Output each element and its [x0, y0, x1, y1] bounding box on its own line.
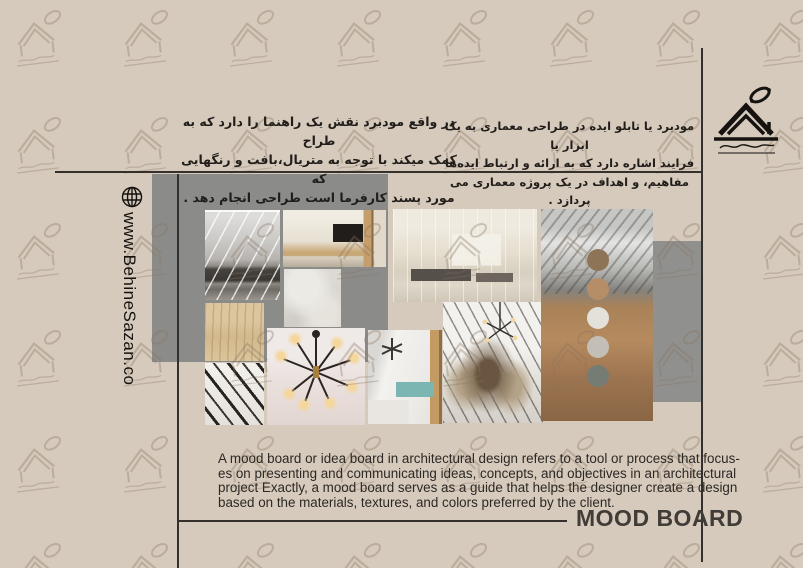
- palette-swatch: [587, 307, 609, 329]
- house-watermark-icon: [435, 7, 498, 71]
- house-watermark-icon: [115, 539, 178, 568]
- marble-texture-photo: [284, 269, 341, 327]
- persian-caption-right-line: مودبرد یا تابلو ایده در طراحی معماری به …: [443, 117, 696, 154]
- description-line: project Exactly, a mood board serves as …: [218, 481, 740, 496]
- house-watermark-icon: [754, 326, 803, 390]
- pendant-light-art: [443, 302, 543, 362]
- track-lighting-photo: [205, 363, 264, 425]
- footer-divider-line: [179, 520, 567, 522]
- color-palette: [587, 249, 609, 387]
- house-watermark-icon: [9, 433, 72, 497]
- bedroom-photo: [205, 210, 280, 300]
- ceiling-fan-art: [368, 330, 442, 370]
- palette-swatch: [587, 249, 609, 271]
- house-watermark-icon: [541, 539, 604, 568]
- moodboard-description: A mood board or idea board in architectu…: [218, 452, 740, 510]
- moodboard-page: در واقع مودبرد نقش یک راهنما را دارد که …: [0, 0, 803, 568]
- house-watermark-icon: [754, 539, 803, 568]
- house-watermark-icon: [754, 220, 803, 284]
- persian-caption-right: مودبرد یا تابلو ایده در طراحی معماری به …: [443, 117, 696, 210]
- description-line: A mood board or idea board in architectu…: [218, 452, 740, 467]
- wood-texture-photo: [205, 303, 264, 361]
- persian-caption-left-line: کمک میکند با توجه به متریال،بافت و رنگها…: [180, 150, 458, 188]
- house-watermark-icon: [435, 539, 498, 568]
- house-watermark-icon: [541, 7, 604, 71]
- house-watermark-icon: [9, 113, 72, 177]
- globe-icon: [121, 186, 143, 208]
- description-line: es on presenting and communicating ideas…: [218, 467, 740, 482]
- persian-caption-left-line: در واقع مودبرد نقش یک راهنما را دارد که …: [180, 112, 458, 150]
- fan-room-photo: [368, 330, 442, 424]
- house-watermark-icon: [222, 539, 285, 568]
- chandelier-photo: [267, 328, 365, 425]
- house-watermark-icon: [328, 539, 391, 568]
- page-title: MOOD BOARD: [576, 505, 743, 532]
- house-watermark-icon: [115, 113, 178, 177]
- house-watermark-icon: [754, 7, 803, 71]
- house-watermark-icon: [9, 7, 72, 71]
- house-watermark-icon: [222, 7, 285, 71]
- house-watermark-icon: [9, 220, 72, 284]
- house-watermark-icon: [115, 433, 178, 497]
- house-watermark-icon: [9, 326, 72, 390]
- persian-caption-right-line: فرایند اشاره دارد که به ارائه و ارتباط ا…: [443, 154, 696, 173]
- behinesazan-logo-icon: [712, 82, 784, 170]
- house-watermark-icon: [328, 7, 391, 71]
- persian-caption-left-line: مورد پسند کارفرما است طراحی انجام دهد .: [180, 188, 458, 207]
- chandelier-art: [267, 328, 365, 425]
- house-watermark-icon: [115, 7, 178, 71]
- tv-wall-photo: [283, 210, 386, 267]
- right-side-panel: [653, 241, 702, 402]
- left-vertical-line: [177, 174, 179, 568]
- dining-room-photo: [443, 302, 543, 423]
- website-link[interactable]: www.BehineSazan.co: [119, 212, 139, 385]
- house-watermark-icon: [754, 433, 803, 497]
- palette-swatch: [587, 336, 609, 358]
- persian-caption-left: در واقع مودبرد نقش یک راهنما را دارد که …: [180, 112, 458, 207]
- palette-swatch: [587, 365, 609, 387]
- living-room-photo: [393, 209, 537, 302]
- persian-caption-right-line: مفاهیم، و اهداف در یک پروژه معماری می پر…: [443, 173, 696, 210]
- house-watermark-icon: [9, 539, 72, 568]
- palette-swatch: [587, 278, 609, 300]
